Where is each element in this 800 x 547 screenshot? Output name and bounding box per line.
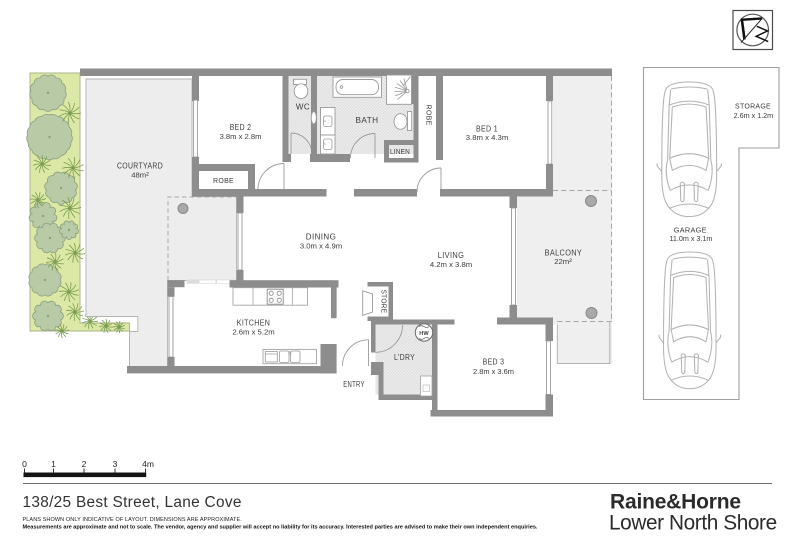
svg-text:ROBE: ROBE bbox=[425, 105, 434, 126]
svg-text:ENTRY: ENTRY bbox=[343, 380, 365, 389]
svg-text:48m²: 48m² bbox=[131, 171, 149, 180]
svg-text:4.2m x 3.8m: 4.2m x 3.8m bbox=[430, 260, 472, 269]
svg-text:BED 2: BED 2 bbox=[230, 123, 252, 132]
svg-text:BED 3: BED 3 bbox=[483, 358, 505, 367]
svg-text:138/25 Best Street, Lane Cove: 138/25 Best Street, Lane Cove bbox=[23, 494, 242, 511]
svg-text:LINEN: LINEN bbox=[390, 149, 410, 156]
svg-text:LIVING: LIVING bbox=[438, 251, 465, 260]
svg-text:KITCHEN: KITCHEN bbox=[237, 318, 271, 327]
svg-text:0: 0 bbox=[22, 459, 27, 469]
svg-text:22m²: 22m² bbox=[554, 257, 572, 266]
svg-text:2.6m x 1.2m: 2.6m x 1.2m bbox=[734, 111, 774, 120]
svg-text:3.8m x 4.3m: 3.8m x 4.3m bbox=[466, 133, 509, 142]
svg-text:WC: WC bbox=[296, 103, 310, 112]
svg-text:11.0m x 3.1m: 11.0m x 3.1m bbox=[669, 234, 712, 243]
svg-text:STORE: STORE bbox=[380, 290, 389, 314]
svg-text:2.8m x 3.6m: 2.8m x 3.6m bbox=[473, 367, 514, 376]
svg-text:ROBE: ROBE bbox=[213, 176, 234, 185]
svg-text:1: 1 bbox=[51, 459, 56, 469]
svg-text:3: 3 bbox=[113, 459, 118, 469]
svg-text:Measurements are approximate a: Measurements are approximate and not to … bbox=[23, 525, 538, 531]
svg-text:2.6m x 5.2m: 2.6m x 5.2m bbox=[232, 327, 274, 336]
svg-text:DINING: DINING bbox=[306, 233, 336, 242]
svg-text:L'DRY: L'DRY bbox=[394, 353, 415, 362]
svg-text:3.0m x 4.9m: 3.0m x 4.9m bbox=[300, 242, 342, 251]
svg-text:COURTYARD: COURTYARD bbox=[117, 162, 163, 171]
svg-text:2: 2 bbox=[82, 459, 87, 469]
svg-text:Raine&Horne: Raine&Horne bbox=[610, 491, 741, 514]
svg-text:4m: 4m bbox=[142, 459, 154, 469]
svg-text:PLANS SHOWN ONLY INDICATIVE OF: PLANS SHOWN ONLY INDICATIVE OF LAYOUT. D… bbox=[23, 517, 243, 523]
svg-text:Lower North Shore: Lower North Shore bbox=[609, 512, 777, 535]
svg-text:HW: HW bbox=[419, 331, 429, 337]
svg-text:3.8m x 2.8m: 3.8m x 2.8m bbox=[220, 132, 262, 141]
svg-text:STORAGE: STORAGE bbox=[735, 102, 771, 111]
svg-text:BATH: BATH bbox=[356, 116, 379, 125]
